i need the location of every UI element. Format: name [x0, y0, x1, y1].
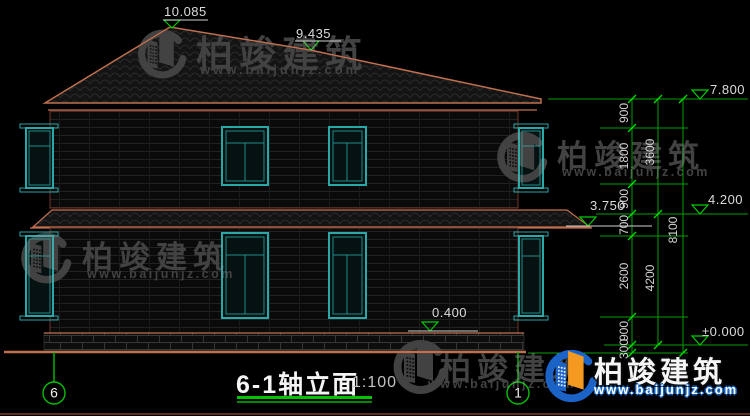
brand-logo-icon-color — [540, 346, 602, 408]
elevation-drawing-canvas: 柏竣建筑 www.baijunjz.com 柏竣建筑 www.baijunjz.… — [0, 0, 750, 416]
brand-url: www.baijunjz.com — [594, 382, 738, 397]
brand-badge: 柏竣建筑 www.baijunjz.com — [0, 0, 750, 416]
